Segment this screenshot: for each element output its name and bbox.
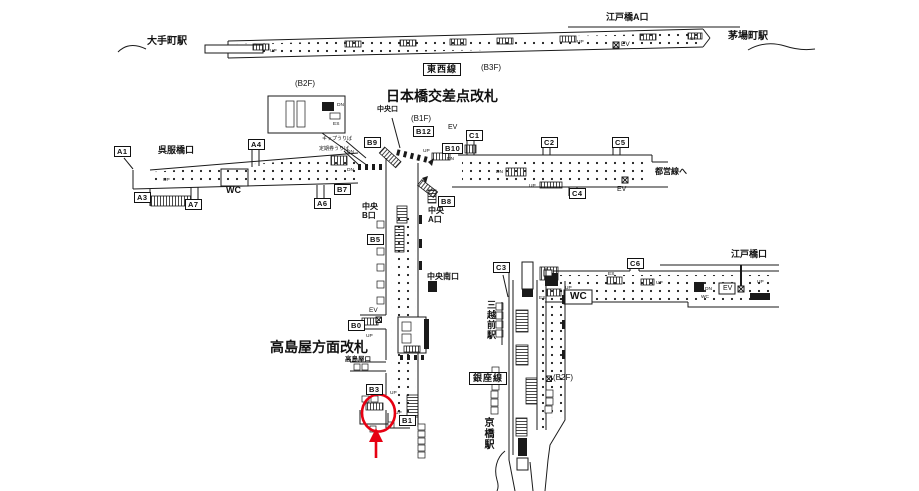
- ev-label-tozai: EV: [621, 42, 630, 49]
- highlight-circle: [362, 395, 395, 432]
- exit-c5: C5: [612, 137, 629, 148]
- station-kyobashi: 京橋駅: [482, 417, 492, 450]
- up-label: UP: [270, 48, 277, 54]
- elevator-icon: [613, 42, 619, 48]
- exit-b12: B12: [413, 126, 434, 137]
- wc-small-label: WC: [701, 294, 710, 300]
- exit-a4: A4: [248, 139, 265, 150]
- floor-b3f: (B3F): [481, 64, 501, 72]
- entrance-edobashi-a: 江戸橋A口: [606, 13, 649, 22]
- entrance-takashimaya: 高島屋口: [345, 357, 371, 364]
- pass-office-label: 定期券うりば: [319, 147, 349, 152]
- gate-nihombashi-title: 日本橋交差点改札: [386, 89, 498, 103]
- entrance-chuo-b-line2: B口: [362, 212, 376, 220]
- up-label: UP: [390, 390, 397, 396]
- ginza-area: UP DN ES UP DN WC ES UP: [491, 262, 779, 491]
- ev-label-east: EV: [617, 186, 626, 193]
- ticket-office-label: キップうりば: [322, 137, 352, 142]
- exit-c4: C4: [569, 188, 586, 199]
- wc-west-label: WC: [226, 186, 241, 195]
- exit-b7: B7: [334, 184, 351, 195]
- station-kayabacho: 茅場町駅: [728, 32, 768, 42]
- up-label: UP: [577, 39, 584, 45]
- exit-a3: A3: [134, 192, 151, 203]
- exit-a6: A6: [314, 198, 331, 209]
- dn-label: DN: [496, 169, 503, 175]
- elevator-icon: [738, 286, 744, 292]
- elevator-icon: [546, 376, 552, 382]
- gate-takashimaya-title: 高島屋方面改札: [270, 340, 368, 354]
- exit-c3: C3: [493, 262, 510, 273]
- ev-label-b12: EV: [448, 124, 457, 131]
- elevator-icon: [622, 177, 628, 183]
- exit-b0: B0: [348, 320, 365, 331]
- line-ginza: 銀座線: [469, 372, 507, 385]
- tozai-corridor: UP UP UP: [118, 27, 815, 58]
- up-label: UP: [529, 183, 536, 189]
- entrance-chuo: 中央口: [377, 106, 398, 113]
- floor-b2f-mezzanine: (B2F): [295, 80, 315, 88]
- exit-c2: C2: [541, 137, 558, 148]
- exit-c6: C6: [627, 258, 644, 269]
- ev-label-ginza: EV: [723, 285, 732, 292]
- exit-b3: B3: [366, 384, 383, 395]
- dn-label: DN: [705, 286, 712, 292]
- line-tozai: 東西線: [423, 63, 461, 76]
- mezzanine-room-b2f: DN ES: [268, 96, 368, 166]
- exit-b10: B10: [442, 143, 463, 154]
- es-label: ES: [608, 271, 614, 277]
- dn-label: DN: [337, 102, 344, 108]
- dn-label: DN: [447, 156, 454, 162]
- exit-a7: A7: [185, 199, 202, 210]
- up-label: UP: [423, 148, 430, 154]
- entrance-chuo-a-line1: 中央: [428, 207, 444, 215]
- wc-ginza-label: WC: [570, 292, 587, 302]
- up-label: UP: [690, 36, 697, 42]
- elevator-icon: [376, 317, 382, 323]
- exit-b5: B5: [367, 234, 384, 245]
- station-otemachi: 大手町駅: [147, 37, 187, 47]
- exit-c1: C1: [466, 130, 483, 141]
- floor-b2f-ginza: (B2F): [553, 374, 573, 382]
- station-mitsukoshimae: 三越前駅: [486, 300, 495, 340]
- east-concourse-arm: UP DN: [452, 140, 668, 196]
- station-map: UP UP UP DN ES UP DN: [0, 0, 919, 491]
- floor-b1f: (B1F): [411, 115, 431, 123]
- entrance-edobashi: 江戸橋口: [731, 250, 767, 259]
- entrance-gofukubashi: 呉服橋口: [158, 146, 194, 155]
- entrance-chuo-b-line1: 中央: [362, 203, 378, 211]
- exit-a1: A1: [114, 146, 131, 157]
- exit-b9: B9: [364, 137, 381, 148]
- ticket-gate-row: [358, 164, 382, 170]
- up-label: UP: [656, 280, 663, 286]
- entrance-chuo-a-line2: A口: [428, 216, 442, 224]
- dn-label: DN: [347, 167, 354, 173]
- toei-line-label: 都営線へ: [655, 168, 687, 176]
- entrance-chuo-minami: 中央南口: [427, 273, 459, 281]
- es-label: ES: [333, 121, 339, 127]
- exit-b1: B1: [399, 415, 416, 426]
- ev-label-central: EV: [369, 308, 378, 315]
